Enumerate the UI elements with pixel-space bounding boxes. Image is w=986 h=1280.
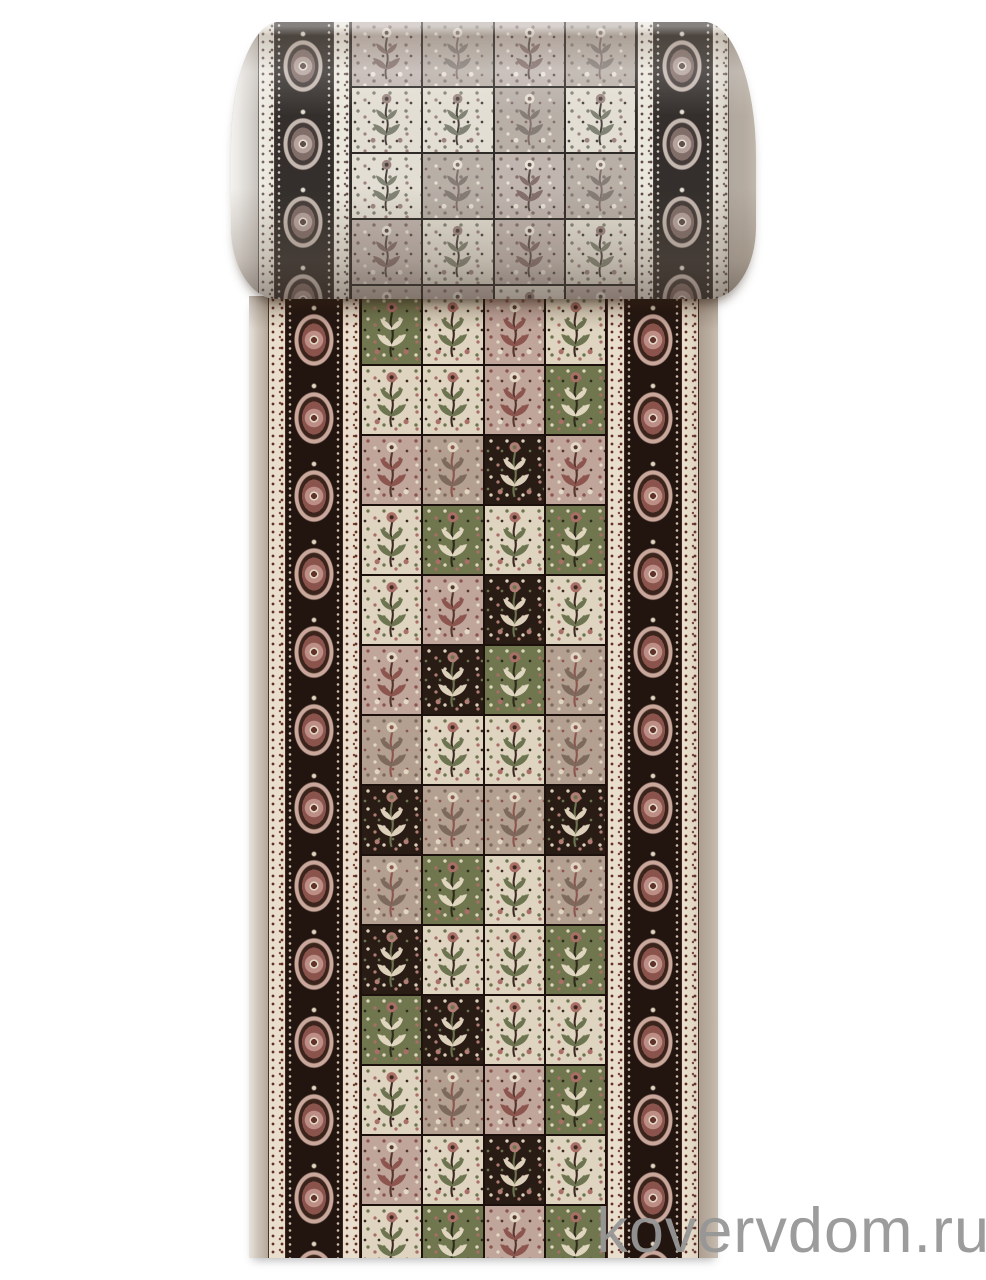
rug-selvage-left <box>231 22 258 299</box>
rug-panel-beige <box>362 856 421 924</box>
rug-panel-beige <box>546 856 605 924</box>
floral-motif-icon <box>489 929 540 991</box>
floral-motif-icon <box>427 719 478 781</box>
floral-motif-icon <box>550 439 601 501</box>
rug-panel-beige <box>423 436 482 504</box>
rug-panel-beige <box>546 716 605 784</box>
floral-motif-icon <box>550 1209 601 1258</box>
floral-motif-icon <box>550 719 601 781</box>
rug-panel-green <box>546 506 605 574</box>
rug-panel-cream <box>362 1066 421 1134</box>
floral-motif-icon <box>427 369 478 431</box>
rug-panel-dark <box>546 786 605 854</box>
floral-motif-icon <box>366 929 417 991</box>
rug-guard-stripe <box>712 22 729 299</box>
rug-panel-cream <box>423 88 492 152</box>
rug-panel-rose <box>362 646 421 714</box>
floral-motif-icon <box>427 509 478 571</box>
floral-motif-icon <box>427 1069 478 1131</box>
rug-panel-cream <box>362 1206 421 1258</box>
rug-panel-dark <box>423 646 482 714</box>
floral-motif-icon <box>570 223 631 281</box>
floral-motif-icon <box>489 509 540 571</box>
floral-motif-icon <box>550 1139 601 1201</box>
rug-panel-dark <box>423 996 482 1064</box>
floral-motif-icon <box>489 789 540 851</box>
floral-motif-icon <box>550 859 601 921</box>
floral-motif-icon <box>499 289 560 299</box>
rug-panel-green <box>546 926 605 994</box>
rug-border-band-left <box>286 296 342 1258</box>
floral-motif-icon <box>550 579 601 641</box>
rug-panel-green <box>546 366 605 434</box>
floral-motif-icon <box>366 299 417 361</box>
rug-runner-face <box>249 296 718 1258</box>
rug-panel-cream <box>362 366 421 434</box>
floral-motif-icon <box>427 289 488 299</box>
floral-motif-icon <box>489 859 540 921</box>
floral-motif-icon <box>550 789 601 851</box>
floral-motif-icon <box>550 1069 601 1131</box>
floral-motif-icon <box>489 1139 540 1201</box>
floral-motif-icon <box>427 91 488 149</box>
rug-guard-stripe <box>637 22 654 299</box>
rug-panel-dark <box>362 786 421 854</box>
floral-motif-icon <box>366 1209 417 1258</box>
rug-panel-cream <box>546 1136 605 1204</box>
floral-motif-icon <box>570 157 631 215</box>
floral-motif-icon <box>427 25 488 83</box>
rug-panel-beige <box>423 154 492 218</box>
rug-guard-stripe <box>681 296 699 1258</box>
floral-motif-icon <box>489 999 540 1061</box>
rug-panel-green <box>423 856 482 924</box>
rug-panel-beige <box>546 646 605 714</box>
rug-panel-cream <box>423 296 482 364</box>
floral-motif-icon <box>499 25 560 83</box>
floral-motif-icon <box>427 157 488 215</box>
rug-panel-cream <box>546 296 605 364</box>
floral-motif-icon <box>427 1139 478 1201</box>
rug-panel-rose <box>485 366 544 434</box>
rug-panel-rose <box>566 286 635 299</box>
rug-panel-cream <box>352 154 421 218</box>
rug-panel-green <box>423 1206 482 1258</box>
floral-motif-icon <box>366 719 417 781</box>
rug-panel-rose <box>423 576 482 644</box>
rug-selvage-right <box>729 22 756 299</box>
rug-panel-rose <box>485 1066 544 1134</box>
rug-panel-rose <box>352 220 421 284</box>
rug-selvage-left <box>249 296 268 1258</box>
rug-panel-green <box>362 996 421 1064</box>
floral-motif-icon <box>366 509 417 571</box>
rug-panel-rose <box>495 220 564 284</box>
rug-roll <box>231 22 756 299</box>
floral-motif-icon <box>356 91 417 149</box>
floral-motif-icon <box>366 859 417 921</box>
floral-motif-icon <box>366 999 417 1061</box>
rug-panel-beige <box>423 786 482 854</box>
rug-panel-rose <box>546 436 605 504</box>
floral-motif-icon <box>427 299 478 361</box>
floral-motif-icon <box>550 299 601 361</box>
rug-selvage-right <box>699 296 718 1258</box>
floral-motif-icon <box>356 223 417 281</box>
rug-panel-cream <box>362 576 421 644</box>
rug-panel-beige <box>362 716 421 784</box>
floral-motif-icon <box>427 439 478 501</box>
floral-motif-icon <box>356 289 417 299</box>
floral-motif-icon <box>427 999 478 1061</box>
floral-motif-icon <box>427 1209 478 1258</box>
rug-panel-cream <box>546 576 605 644</box>
floral-motif-icon <box>499 157 560 215</box>
rug-panel-beige <box>495 88 564 152</box>
floral-motif-icon <box>427 859 478 921</box>
rug-guard-stripe <box>268 296 286 1258</box>
floral-motif-icon <box>489 299 540 361</box>
rug-panel-cream <box>566 220 635 284</box>
rug-panel-green <box>546 1066 605 1134</box>
rug-panel-dark <box>362 926 421 994</box>
floral-motif-icon <box>489 1209 540 1258</box>
floral-motif-icon <box>427 929 478 991</box>
rug-runner <box>249 296 718 1258</box>
floral-motif-icon <box>427 579 478 641</box>
rug-border-band-right <box>625 296 681 1258</box>
floral-motif-icon <box>356 157 417 215</box>
floral-motif-icon <box>550 649 601 711</box>
rug-panel-rose <box>423 286 492 299</box>
rug-panel-cream <box>423 366 482 434</box>
rug-panel-rose <box>495 22 564 86</box>
rug-panel-rose <box>485 296 544 364</box>
floral-motif-icon <box>570 25 631 83</box>
rug-panel-cream <box>362 506 421 574</box>
floral-motif-icon <box>366 579 417 641</box>
floral-motif-icon <box>356 25 417 83</box>
rug-panel-cream <box>352 88 421 152</box>
product-photo: kovervdom.ru <box>0 0 986 1280</box>
rug-guard-stripe <box>607 296 625 1258</box>
floral-motif-icon <box>499 91 560 149</box>
rug-border-band-left <box>275 22 333 299</box>
floral-motif-icon <box>489 369 540 431</box>
rug-panel-beige <box>485 786 544 854</box>
rug-roll-backside <box>231 22 756 299</box>
rug-panel-rose <box>485 1206 544 1258</box>
rug-panel-dark <box>485 1136 544 1204</box>
rug-panel-green <box>485 646 544 714</box>
rug-panel-beige <box>352 286 421 299</box>
rug-panel-field <box>360 296 607 1258</box>
rug-panel-green <box>423 506 482 574</box>
floral-motif-icon <box>489 719 540 781</box>
floral-motif-icon <box>570 91 631 149</box>
rug-panel-rose <box>495 154 564 218</box>
rug-panel-beige <box>423 22 492 86</box>
rug-panel-cream <box>485 856 544 924</box>
watermark-text: kovervdom.ru <box>596 1195 986 1267</box>
rug-border-band-right <box>654 22 712 299</box>
rug-panel-field <box>350 22 637 299</box>
floral-motif-icon <box>489 1069 540 1131</box>
floral-motif-icon <box>550 509 601 571</box>
rug-panel-cream <box>485 506 544 574</box>
floral-motif-icon <box>550 999 601 1061</box>
floral-motif-icon <box>570 289 631 299</box>
floral-motif-icon <box>427 649 478 711</box>
floral-motif-icon <box>366 1139 417 1201</box>
floral-motif-icon <box>366 649 417 711</box>
floral-motif-icon <box>550 369 601 431</box>
rug-panel-dark <box>485 436 544 504</box>
rug-panel-cream <box>423 1136 482 1204</box>
rug-panel-cream <box>495 286 564 299</box>
floral-motif-icon <box>366 369 417 431</box>
floral-motif-icon <box>427 223 488 281</box>
rug-panel-cream <box>566 88 635 152</box>
floral-motif-icon <box>489 579 540 641</box>
floral-motif-icon <box>427 789 478 851</box>
rug-panel-green <box>362 296 421 364</box>
rug-panel-cream <box>423 716 482 784</box>
rug-panel-rose <box>362 1136 421 1204</box>
floral-motif-icon <box>366 439 417 501</box>
floral-motif-icon <box>499 223 560 281</box>
rug-panel-rose <box>352 22 421 86</box>
rug-guard-stripe <box>258 22 275 299</box>
rug-roll-face <box>231 22 756 299</box>
rug-panel-cream <box>485 926 544 994</box>
floral-motif-icon <box>550 929 601 991</box>
rug-panel-cream <box>423 926 482 994</box>
rug-panel-rose <box>362 436 421 504</box>
rug-guard-stripe <box>342 296 360 1258</box>
rug-panel-cream <box>485 716 544 784</box>
floral-motif-icon <box>366 789 417 851</box>
rug-panel-cream <box>423 220 492 284</box>
rug-panel-beige <box>566 22 635 86</box>
rug-panel-cream <box>485 996 544 1064</box>
rug-panel-beige <box>423 1066 482 1134</box>
rug-guard-stripe <box>333 22 350 299</box>
floral-motif-icon <box>489 439 540 501</box>
floral-motif-icon <box>489 649 540 711</box>
rug-panel-dark <box>485 576 544 644</box>
rug-panel-cream <box>546 996 605 1064</box>
rug-panel-beige <box>566 154 635 218</box>
floral-motif-icon <box>366 1069 417 1131</box>
